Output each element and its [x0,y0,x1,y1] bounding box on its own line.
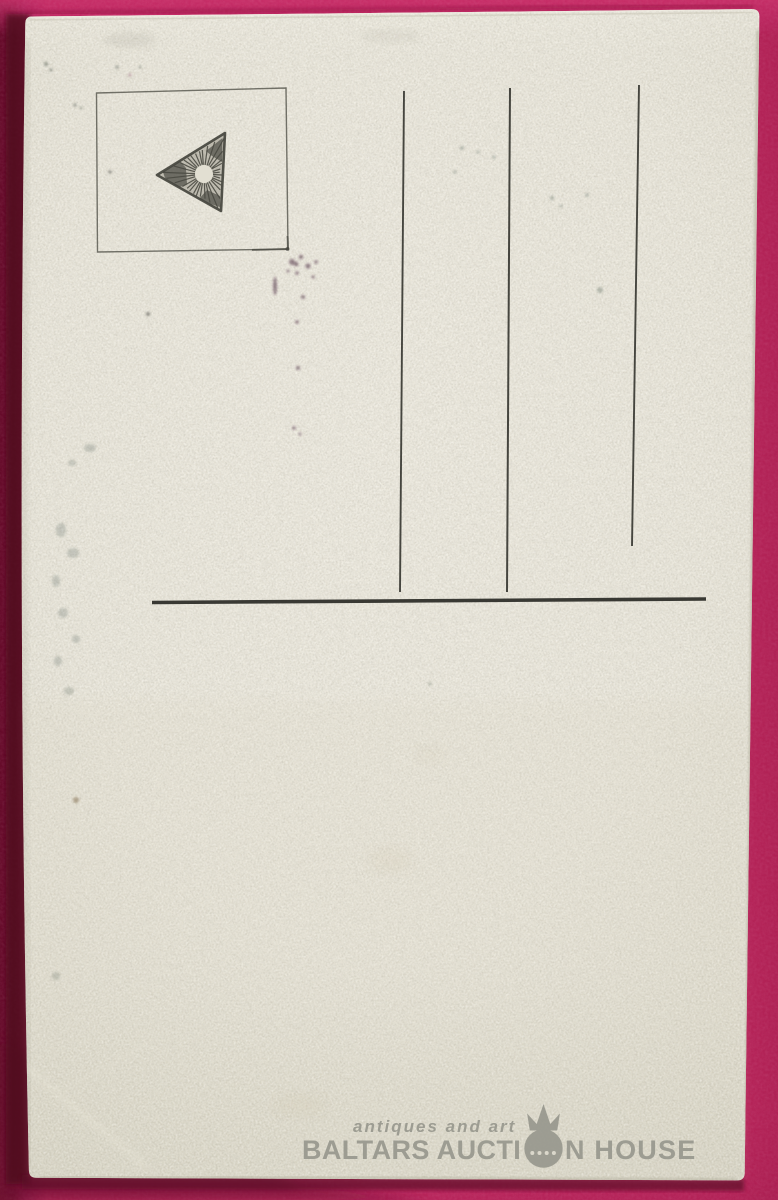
svg-text:N HOUSE: N HOUSE [565,1135,696,1165]
svg-text:antiques and art: antiques and art [353,1117,516,1136]
svg-text:BALTARS AUCTI: BALTARS AUCTI [302,1135,521,1165]
